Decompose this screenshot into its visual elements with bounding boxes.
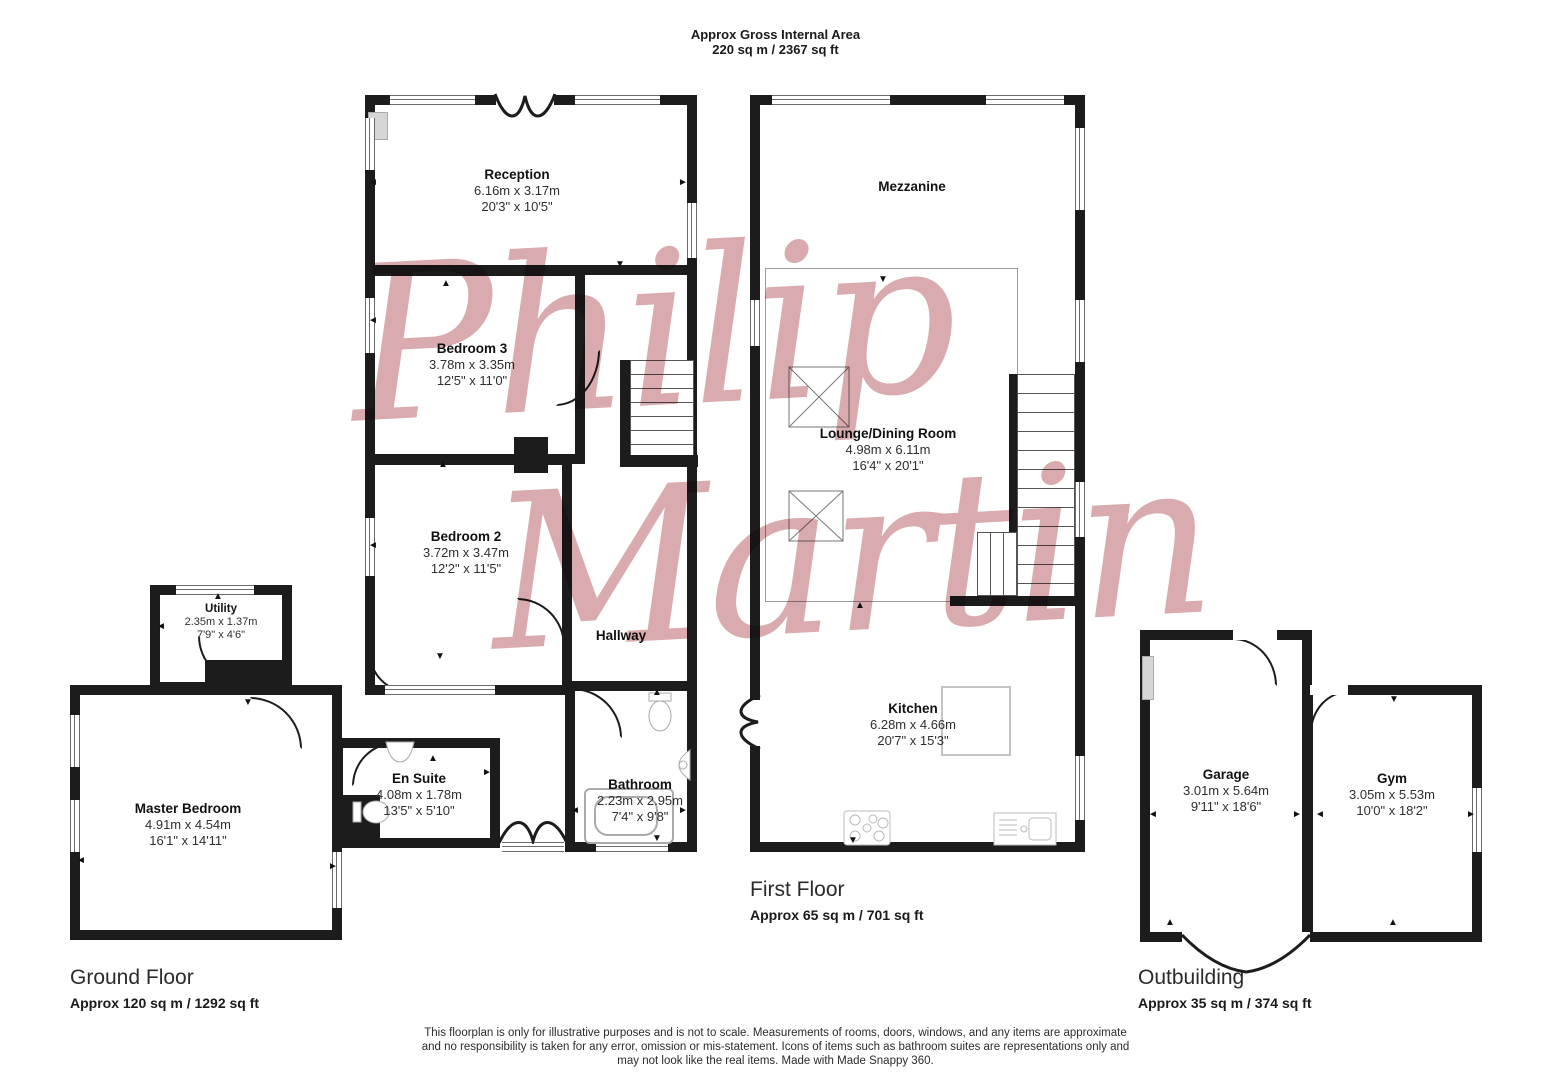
hallway-right-wall: [687, 266, 697, 690]
direction-marker: [652, 834, 662, 844]
kitchen-dividing-wall: [950, 596, 1085, 606]
direction-marker: [435, 652, 445, 662]
direction-marker: [76, 856, 86, 866]
page-title: Approx Gross Internal Area 220 sq m / 23…: [0, 27, 1551, 57]
room-label-reception: Reception 6.16m x 3.17m 20'3" x 10'5": [417, 166, 617, 215]
window: [772, 95, 890, 105]
direction-marker: [1389, 695, 1399, 705]
stairs: [1017, 374, 1075, 602]
room-label-bathroom: Bathroom 2.23m x 2.95m 7'4" x 9'8": [575, 776, 705, 825]
room-label-hallway: Hallway: [571, 627, 671, 644]
direction-marker: [213, 592, 223, 602]
direction-marker: [243, 698, 253, 708]
direction-marker: [438, 460, 448, 470]
wall-detail: [1142, 656, 1154, 700]
title-heading: Approx Gross Internal Area: [0, 27, 1551, 42]
ground-floor-caption: Ground Floor Approx 120 sq m / 1292 sq f…: [70, 966, 259, 1011]
direction-marker: [1165, 918, 1175, 928]
window: [687, 203, 697, 258]
room-label-utility: Utility 2.35m x 1.37m 7'9" x 4'6": [151, 602, 291, 642]
window: [365, 118, 375, 170]
direction-marker: [428, 754, 438, 764]
room-label-lounge: Lounge/Dining Room 4.98m x 6.11m 16'4" x…: [788, 425, 988, 474]
title-area: 220 sq m / 2367 sq ft: [0, 42, 1551, 57]
room-label-master: Master Bedroom 4.91m x 4.54m 16'1" x 14'…: [88, 800, 288, 849]
floorplan-canvas: Approx Gross Internal Area 220 sq m / 23…: [0, 0, 1551, 1080]
skylight-icon: [788, 366, 850, 428]
double-door-chevron: [494, 93, 556, 125]
room-label-bedroom3: Bedroom 3 3.78m x 3.35m 12'5" x 11'0": [372, 340, 572, 389]
window: [385, 685, 495, 695]
window: [70, 715, 80, 767]
window: [390, 95, 475, 105]
window: [1075, 300, 1085, 362]
direction-marker: [678, 178, 688, 188]
direction-marker: [441, 279, 451, 289]
direction-marker: [328, 862, 338, 872]
direction-marker: [615, 260, 625, 270]
sink-icon: [384, 740, 416, 764]
stairs: [630, 360, 694, 462]
skylight-icon: [788, 490, 844, 542]
disclaimer: This floorplan is only for illustrative …: [0, 1026, 1551, 1068]
room-label-gym: Gym 3.05m x 5.53m 10'0" x 18'2": [1292, 770, 1492, 819]
door-opening: [1310, 685, 1348, 695]
room-label-kitchen: Kitchen 6.28m x 4.66m 20'7" x 15'3": [815, 700, 1011, 749]
direction-marker: [855, 601, 865, 611]
window: [1075, 128, 1085, 210]
chimney-block: [514, 437, 548, 473]
stair-landing: [977, 532, 1018, 596]
outbuilding-caption: Outbuilding Approx 35 sq m / 374 sq ft: [1138, 966, 1312, 1011]
window: [1075, 482, 1085, 537]
room-label-mezzanine: Mezzanine: [812, 178, 1012, 195]
stairs-stringer: [620, 360, 630, 462]
double-door-chevron: [731, 694, 761, 750]
direction-marker: [368, 316, 378, 326]
first-floor-caption: First Floor Approx 65 sq m / 701 sq ft: [750, 878, 924, 923]
room-label-ensuite: En Suite 4.08m x 1.78m 13'5" x 5'10": [319, 770, 519, 819]
door-opening: [1233, 630, 1277, 640]
window: [750, 300, 760, 346]
direction-marker: [848, 836, 858, 846]
direction-marker: [368, 178, 378, 188]
stairs-wall: [620, 455, 698, 467]
room-label-bedroom2: Bedroom 2 3.72m x 3.47m 12'2" x 11'5": [366, 528, 566, 577]
direction-marker: [1388, 918, 1398, 928]
window: [1075, 756, 1085, 820]
window: [70, 800, 80, 852]
toilet-icon: [645, 692, 675, 734]
window: [986, 95, 1064, 105]
sink-icon: [993, 812, 1057, 846]
direction-marker: [878, 275, 888, 285]
direction-marker: [652, 688, 662, 698]
window: [575, 95, 660, 105]
